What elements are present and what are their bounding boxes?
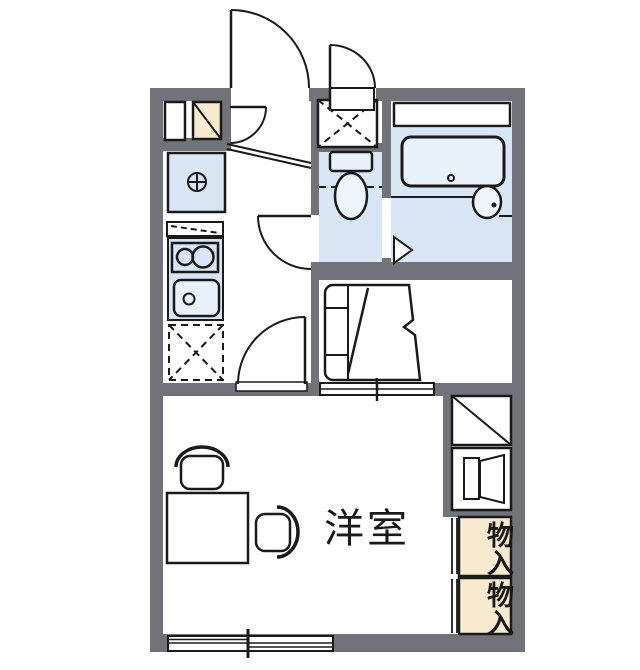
- western-room-label: 洋室: [324, 509, 410, 549]
- storage-label-lower: 物入: [459, 581, 511, 637]
- storage-label-upper: 物入: [459, 521, 511, 577]
- bathroom-window: [394, 103, 510, 126]
- room-door-swing-arc: [238, 317, 305, 384]
- wall-corridor-right-lower: [311, 266, 319, 396]
- gas-stove: [172, 243, 218, 272]
- service-door-swing-arc: [330, 45, 375, 88]
- room-door-threshold: [236, 382, 307, 391]
- entry-side-box: [165, 102, 185, 140]
- toilet-bowl: [335, 173, 367, 219]
- kitchen-sink: [174, 280, 219, 316]
- toilet-tank: [330, 152, 372, 171]
- wash-basin: [473, 186, 501, 218]
- wall-right: [512, 88, 525, 652]
- wall-left: [150, 88, 163, 652]
- floorplan-svg: [0, 0, 640, 670]
- bed-room: [320, 285, 434, 401]
- entrance-opening: [231, 88, 309, 101]
- chair-right-seat: [256, 514, 290, 551]
- entry-inner-door-arc: [230, 107, 266, 143]
- balcony-window: [168, 629, 333, 658]
- entry-step-line-1: [227, 144, 311, 163]
- floorplan: 洋室 物入 物入: [0, 0, 640, 670]
- wall-closet-west: [443, 396, 452, 517]
- kitchen: [167, 153, 225, 380]
- entry-step-line-2: [227, 149, 311, 168]
- basin-faucet-dot: [492, 203, 497, 208]
- heater-panel-left: [464, 458, 479, 499]
- desk: [167, 493, 248, 563]
- western-room-furniture: [167, 447, 298, 563]
- bed-outline: [325, 285, 420, 380]
- chair-top-seat: [181, 456, 223, 489]
- room-entry-door: [236, 317, 307, 391]
- heater-panel-right: [480, 455, 504, 503]
- ventilation-fan-icon: [188, 173, 206, 191]
- service-door-frame: [330, 88, 374, 110]
- toilet-door-swing-arc: [258, 216, 311, 269]
- wall-south-of-bath: [311, 262, 512, 280]
- entrance-door-swing-arc: [231, 10, 309, 88]
